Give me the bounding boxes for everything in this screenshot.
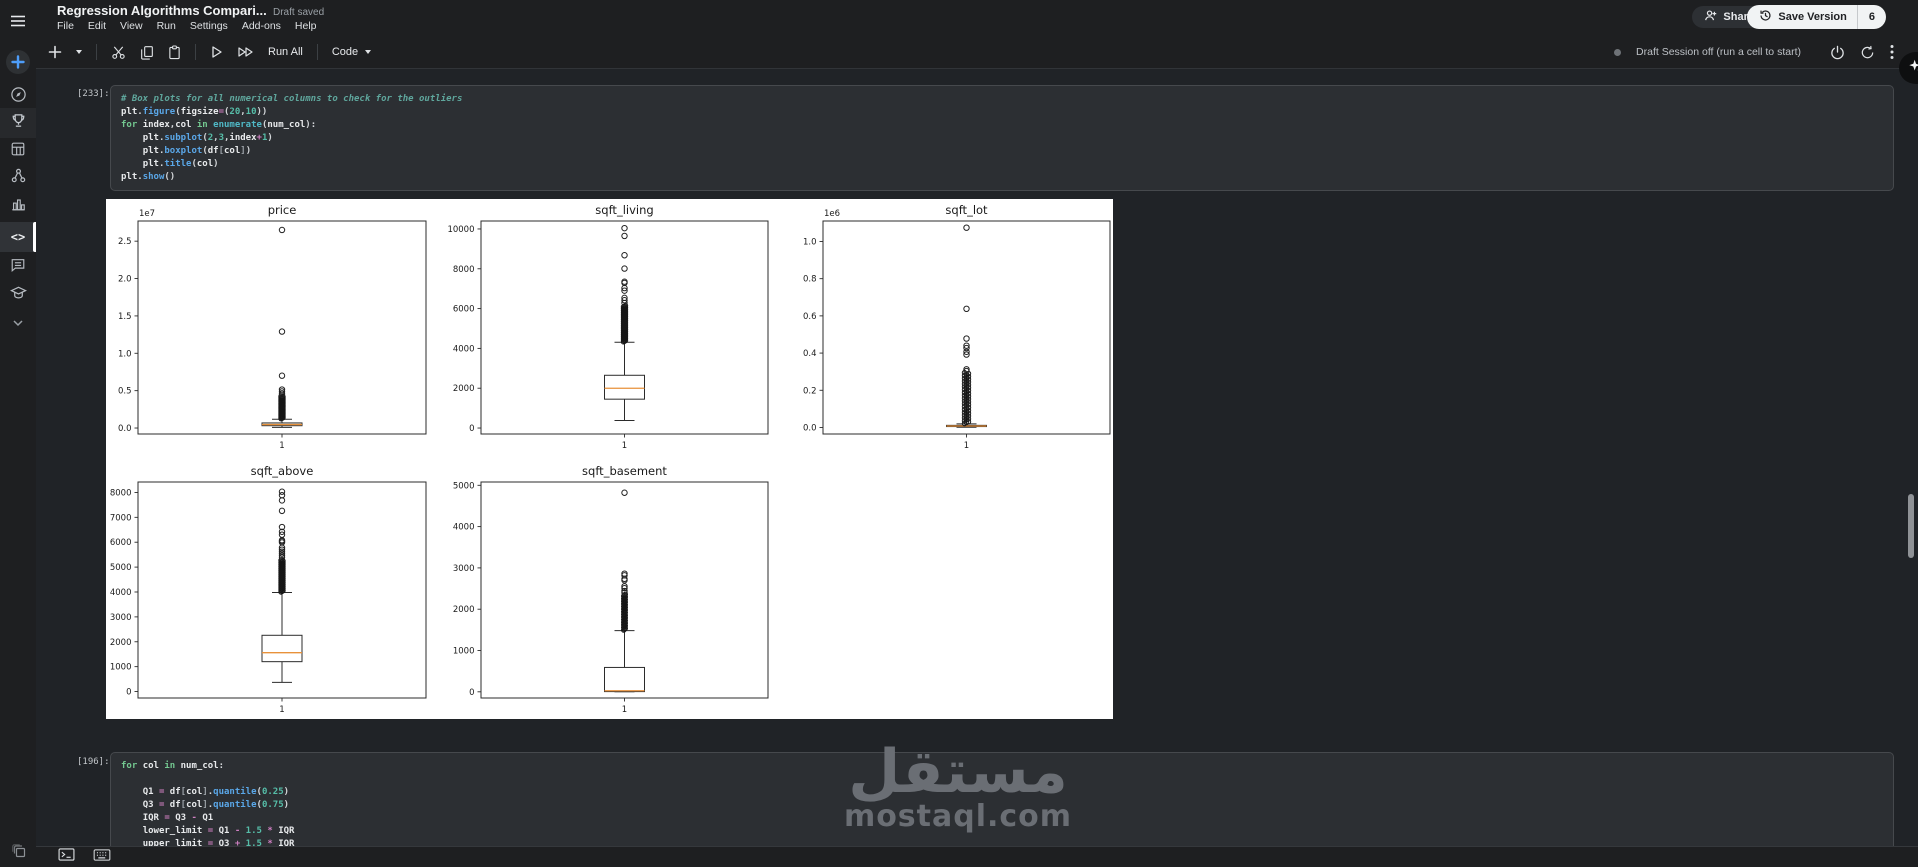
cell-output-figure: price1e70.00.51.01.52.02.51sqft_living02… [106, 199, 1113, 719]
save-version-label: Save Version [1778, 11, 1847, 23]
code-token: boxplot [164, 146, 202, 156]
menu-file[interactable]: File [57, 20, 74, 32]
boxplot-sqft_lot: sqft_lot1e60.00.20.40.60.81.01 [803, 203, 1110, 451]
svg-text:1: 1 [279, 705, 284, 715]
code-token: plt [143, 159, 159, 169]
code-token: Q3 [175, 813, 186, 823]
code-line: for index,col in enumerate(num_col): [121, 119, 1883, 132]
session-status-dot [1614, 49, 1621, 56]
code-line: plt.boxplot(df[col]) [121, 145, 1883, 158]
code-token: in [197, 120, 208, 130]
code-token [121, 133, 143, 143]
code-token [121, 146, 143, 156]
left-sidebar: <> [0, 0, 36, 867]
sidebar-item-code[interactable]: <> [0, 222, 36, 252]
code-brackets-icon: <> [11, 230, 25, 244]
code-token [121, 159, 143, 169]
code-token: num_col [181, 761, 219, 771]
svg-text:1.0: 1.0 [118, 349, 132, 359]
code-line: lower_limit = Q1 - 1.5 * IQR [121, 825, 1883, 838]
datasets-grid-icon [10, 141, 26, 162]
hamburger-menu-button[interactable] [0, 8, 36, 38]
svg-text:5000: 5000 [453, 481, 475, 491]
vertical-scrollbar-thumb[interactable] [1908, 494, 1914, 558]
copy-cell-button[interactable] [140, 45, 154, 60]
code-token: IQR [143, 813, 159, 823]
competitions-trophy-icon [10, 112, 27, 134]
code-token: df [170, 800, 181, 810]
svg-text:8000: 8000 [110, 488, 132, 498]
code-token: in [164, 761, 175, 771]
keyboard-icon[interactable] [93, 848, 111, 866]
code-line: for col in num_col: [121, 760, 1883, 773]
code-line: IQR = Q3 - Q1 [121, 812, 1883, 825]
boxplot-sqft_living: sqft_living02000400060008000100001 [447, 203, 768, 451]
code-token [121, 826, 143, 836]
run-cell-button[interactable] [210, 45, 223, 59]
code-token: plt [143, 146, 159, 156]
code-token: enumerate [213, 120, 262, 130]
sidebar-item-competitions[interactable] [0, 108, 36, 138]
code-token: col [175, 120, 191, 130]
box [605, 375, 645, 399]
code-token: df [208, 146, 219, 156]
draft-status: Draft saved [273, 7, 324, 18]
menubar: File Edit View Run Settings Add-ons Help [57, 20, 317, 32]
notebook-title[interactable]: Regression Algorithms Compari... [57, 3, 267, 18]
code-line: plt.figure(figsize=(20,10)) [121, 106, 1883, 119]
code-token: Q3 [143, 800, 154, 810]
svg-text:3000: 3000 [110, 613, 132, 623]
svg-text:0: 0 [469, 424, 474, 434]
code-token: quantile [213, 787, 256, 797]
code-token: ) [213, 159, 218, 169]
code-token: figure [143, 107, 176, 117]
code-token: IQR [278, 826, 294, 836]
terminal-console-icon[interactable] [58, 848, 75, 866]
version-count-badge[interactable]: 6 [1858, 11, 1886, 23]
svg-text:0.8: 0.8 [803, 275, 817, 285]
subplot-title: sqft_lot [945, 203, 988, 217]
hamburger-menu-icon [10, 14, 26, 33]
code-line: plt.show() [121, 171, 1883, 184]
svg-text:2.0: 2.0 [118, 275, 132, 285]
axis-scale-label: 1e7 [139, 209, 155, 219]
svg-text:1: 1 [622, 441, 627, 451]
box [605, 667, 645, 691]
subplot-title: sqft_living [595, 203, 653, 217]
run-all-label[interactable]: Run All [268, 46, 303, 58]
code-token: # Box plots for all numerical columns to… [121, 94, 462, 104]
toolbar-more-kebab-icon[interactable] [1890, 44, 1894, 60]
code-token: 0.25 [262, 787, 284, 797]
code-token: subplot [164, 133, 202, 143]
code-token: : [219, 761, 224, 771]
add-cell-button[interactable] [48, 45, 62, 59]
cut-cell-button[interactable] [111, 45, 126, 60]
svg-text:3000: 3000 [453, 564, 475, 574]
add-cell-caret-down-icon[interactable] [76, 50, 82, 54]
svg-text:4000: 4000 [453, 344, 475, 354]
code-line: plt.subplot(2,3,index+1) [121, 132, 1883, 145]
svg-text:10000: 10000 [447, 225, 474, 235]
svg-text:4000: 4000 [110, 588, 132, 598]
boxplots-figure: price1e70.00.51.01.52.02.51sqft_living02… [106, 199, 1113, 719]
code-token: show [143, 172, 165, 182]
code-token: plt [121, 172, 137, 182]
code-line: Q1 = df[col].quantile(0.25) [121, 786, 1883, 799]
code-token: Q1 [219, 826, 230, 836]
learn-graduation-cap-icon [10, 284, 27, 306]
code-token: Q1 [202, 813, 213, 823]
svg-text:1000: 1000 [110, 663, 132, 673]
svg-text:0.2: 0.2 [803, 386, 817, 396]
active-item-indicator [33, 222, 36, 252]
subplot-title: sqft_above [251, 464, 314, 478]
create-button[interactable] [0, 48, 36, 80]
menu-settings[interactable]: Settings [190, 20, 228, 32]
code-token: index [143, 120, 170, 130]
code-cell-boxplots[interactable]: # Box plots for all numerical columns to… [110, 85, 1894, 191]
cell-type-dropdown[interactable]: Code [332, 46, 371, 58]
code-token [121, 800, 143, 810]
svg-text:0.4: 0.4 [803, 349, 817, 359]
save-history-clock-icon [1759, 9, 1772, 25]
notebook-toolbar: Run All Code Draft Session off (run a ce… [36, 36, 1918, 69]
svg-text:2000: 2000 [453, 605, 475, 615]
code-token: lower_limit [143, 826, 203, 836]
sidebar-item-benchmarks[interactable] [0, 191, 36, 221]
execution-count-cell-1: [233]: [77, 89, 110, 99]
toolbar-separator [195, 44, 196, 60]
code-token: () [164, 172, 175, 182]
benchmarks-chart-icon [10, 196, 26, 217]
boxplot-sqft_basement: sqft_basement0100020003000400050001 [453, 464, 768, 715]
kaggle-notebook-editor: <> Regression Algorithms Compari... Draf… [0, 0, 1918, 867]
bottom-status-bar [36, 846, 1918, 867]
axis-scale-label: 1e6 [824, 209, 840, 219]
code-line: # Box plots for all numerical columns to… [121, 93, 1883, 106]
svg-text:1.5: 1.5 [118, 312, 132, 322]
svg-text:2000: 2000 [110, 638, 132, 648]
code-token [121, 787, 143, 797]
svg-text:1000: 1000 [453, 647, 475, 657]
paste-cell-button[interactable] [168, 45, 181, 60]
code-line: Q3 = df[col].quantile(0.75) [121, 799, 1883, 812]
svg-text:6000: 6000 [453, 305, 475, 315]
code-token: ) [284, 787, 289, 797]
svg-text:2.5: 2.5 [118, 237, 132, 247]
svg-text:2000: 2000 [453, 384, 475, 394]
svg-text:1: 1 [279, 441, 284, 451]
code-token: index [229, 133, 256, 143]
toolbar-separator [317, 44, 318, 60]
code-token: Q1 [143, 787, 154, 797]
code-token: )) [257, 107, 268, 117]
stacked-windows-icon[interactable] [11, 843, 27, 864]
notebook-header: Regression Algorithms Compari... Draft s… [36, 0, 1918, 36]
code-token: for [121, 761, 137, 771]
code-token [121, 813, 143, 823]
svg-text:0.6: 0.6 [803, 312, 817, 322]
home-compass-icon [10, 86, 27, 108]
code-token: 10 [246, 107, 257, 117]
code-cell-content: # Box plots for all numerical columns to… [121, 93, 1883, 184]
code-token: for [121, 120, 137, 130]
toolbar-separator [96, 44, 97, 60]
code-token [121, 774, 126, 784]
cell-type-caret-down-icon [365, 50, 371, 54]
svg-text:0: 0 [126, 688, 131, 698]
menu-add-ons[interactable]: Add-ons [242, 20, 281, 32]
sparkle-icon [1908, 58, 1918, 79]
discussions-comment-icon [10, 257, 26, 278]
svg-text:0.0: 0.0 [118, 424, 132, 434]
code-token: ) [267, 133, 272, 143]
menu-help[interactable]: Help [295, 20, 317, 32]
svg-text:5000: 5000 [110, 563, 132, 573]
menu-edit[interactable]: Edit [88, 20, 106, 32]
code-token: figsize [181, 107, 219, 117]
menu-run[interactable]: Run [157, 20, 176, 32]
svg-text:7000: 7000 [110, 513, 132, 523]
svg-text:0.0: 0.0 [803, 423, 817, 433]
sidebar-more-button[interactable] [0, 308, 36, 338]
code-line [121, 773, 1883, 786]
svg-text:1: 1 [964, 441, 969, 451]
code-token: title [164, 159, 191, 169]
code-token: plt [121, 107, 137, 117]
create-plus-icon [5, 49, 31, 80]
sidebar-item-learn[interactable] [0, 280, 36, 310]
svg-text:8000: 8000 [453, 265, 475, 275]
restart-session-button[interactable] [1860, 45, 1875, 60]
svg-text:0.5: 0.5 [118, 387, 132, 397]
code-line: plt.title(col) [121, 158, 1883, 171]
save-version-button[interactable]: Save Version 6 [1747, 5, 1886, 29]
code-token: ): [305, 120, 316, 130]
box [262, 635, 302, 661]
code-token: col [186, 787, 202, 797]
code-token: plt [143, 133, 159, 143]
more-chevron-down-icon [12, 314, 24, 332]
subplot-title: price [268, 203, 297, 217]
menu-view[interactable]: View [120, 20, 143, 32]
svg-text:1: 1 [622, 705, 627, 715]
share-person-icon [1704, 9, 1717, 25]
code-token: ) [284, 800, 289, 810]
code-cell-content: for col in num_col: Q1 = df[col].quantil… [121, 760, 1883, 851]
sidebar-item-datasets[interactable] [0, 136, 36, 166]
code-token: num_col [267, 120, 305, 130]
code-token: col [143, 761, 159, 771]
code-token: col [224, 146, 240, 156]
execution-count-cell-2: [196]: [77, 757, 110, 767]
sidebar-item-models[interactable] [0, 163, 36, 193]
session-status-text: Draft Session off (run a cell to start) [1636, 46, 1801, 58]
run-all-fast-forward-icon[interactable] [237, 45, 254, 59]
code-token: 1.5 [246, 826, 262, 836]
code-token: ) [246, 146, 251, 156]
code-token: 20 [229, 107, 240, 117]
code-token: quantile [213, 800, 256, 810]
code-token: df [170, 787, 181, 797]
code-token: col [197, 159, 213, 169]
svg-text:4000: 4000 [453, 523, 475, 533]
svg-text:0: 0 [469, 688, 474, 698]
models-network-icon [10, 167, 27, 189]
boxplot-price: price1e70.00.51.01.52.02.51 [118, 203, 426, 451]
boxplot-sqft_above: sqft_above010002000300040005000600070008… [110, 464, 426, 715]
sidebar-item-discussions[interactable] [0, 252, 36, 282]
code-token: 0.75 [262, 800, 284, 810]
code-token: col [186, 800, 202, 810]
power-session-button[interactable] [1830, 45, 1845, 60]
svg-text:1.0: 1.0 [803, 237, 817, 247]
subplot-title: sqft_basement [582, 464, 667, 478]
cell-type-label: Code [332, 46, 358, 58]
svg-text:6000: 6000 [110, 538, 132, 548]
